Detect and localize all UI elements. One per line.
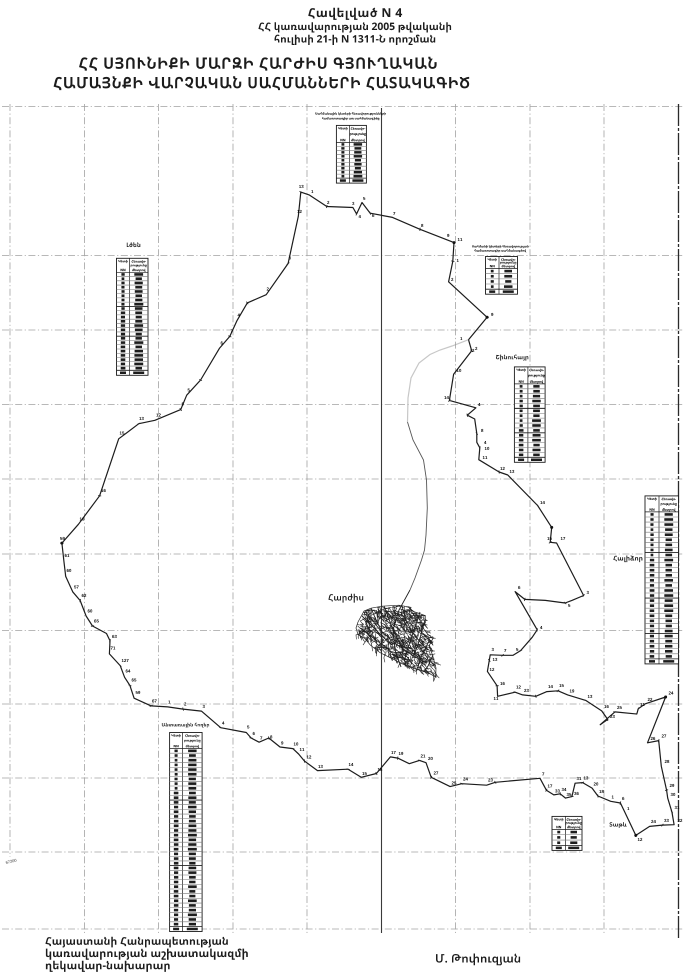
svg-text:67200: 67200 [5, 857, 18, 865]
